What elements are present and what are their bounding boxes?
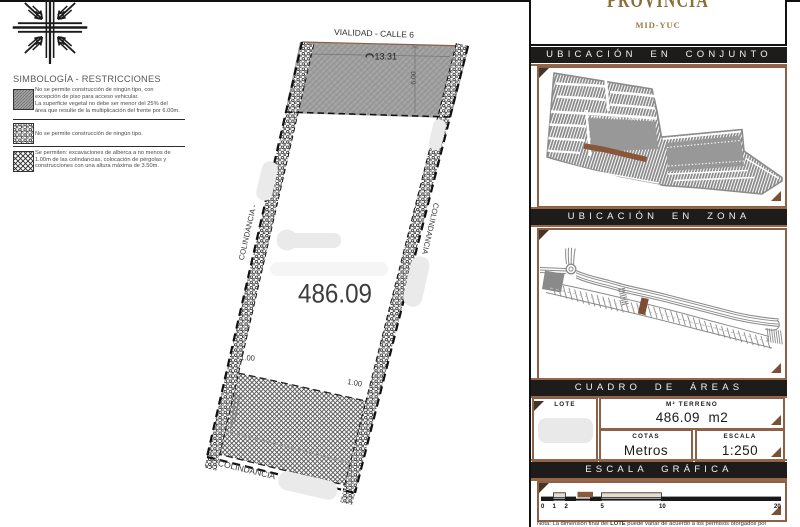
svg-text:1.00: 1.00 bbox=[240, 353, 255, 363]
svg-text:0: 0 bbox=[541, 504, 545, 510]
svg-text:1: 1 bbox=[553, 504, 557, 510]
svg-text:1.00: 1.00 bbox=[347, 377, 363, 388]
svg-text:VIALIDAD - CALLE 6: VIALIDAD - CALLE 6 bbox=[334, 27, 415, 40]
svg-text:20: 20 bbox=[774, 504, 781, 510]
svg-text:6.00: 6.00 bbox=[411, 71, 418, 84]
svg-text:5: 5 bbox=[601, 504, 605, 510]
svg-text:10: 10 bbox=[659, 504, 666, 510]
svg-text:486.09: 486.09 bbox=[298, 279, 372, 309]
svg-text:13.31: 13.31 bbox=[375, 52, 398, 62]
svg-text:2: 2 bbox=[565, 504, 569, 510]
